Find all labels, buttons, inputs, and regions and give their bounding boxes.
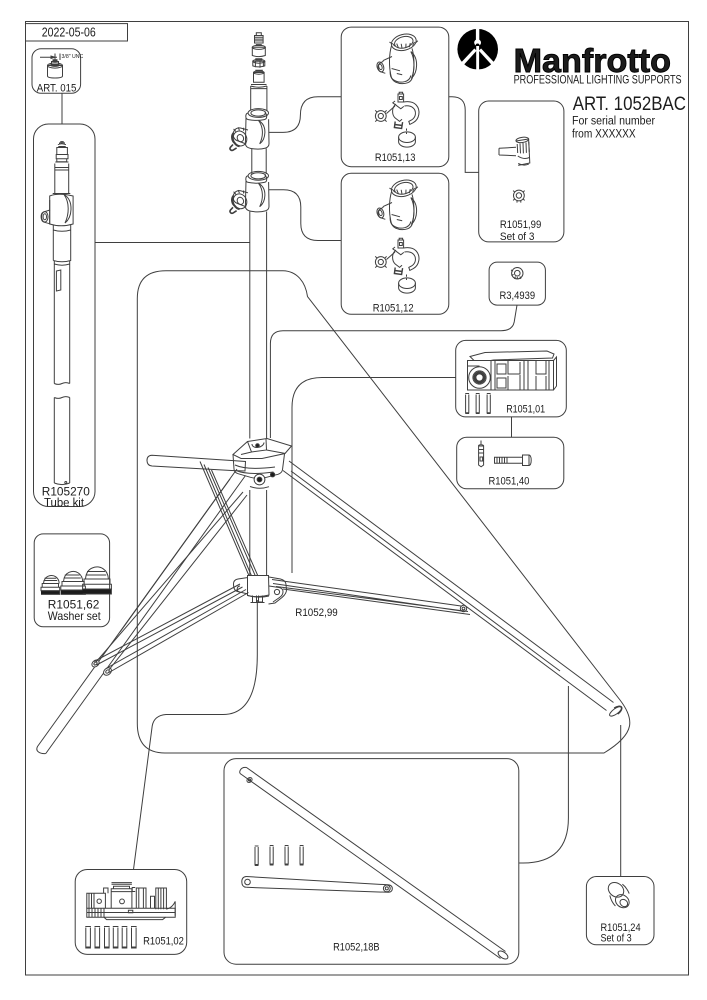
svg-text:R1051,01: R1051,01: [506, 404, 545, 416]
svg-text:2022-05-06: 2022-05-06: [42, 25, 96, 40]
svg-text:For serial number: For serial number: [572, 113, 655, 127]
svg-text:Washer set: Washer set: [48, 610, 102, 623]
svg-text:Set of 3: Set of 3: [601, 933, 632, 945]
svg-text:R1051,12: R1051,12: [373, 303, 414, 315]
svg-text:ART. 1052BAC: ART. 1052BAC: [573, 93, 686, 115]
svg-text:R1051,40: R1051,40: [489, 475, 530, 487]
svg-text:from XXXXXX: from XXXXXX: [572, 126, 636, 140]
svg-text:ART. 015: ART. 015: [37, 82, 77, 94]
svg-text:R1051,02: R1051,02: [143, 935, 184, 947]
svg-text:Set of 3: Set of 3: [500, 231, 535, 243]
svg-text:PROFESSIONAL LIGHTING SUPPORTS: PROFESSIONAL LIGHTING SUPPORTS: [514, 73, 682, 87]
svg-text:Tube kit: Tube kit: [44, 496, 85, 510]
svg-text:R1051,99: R1051,99: [500, 219, 541, 231]
svg-text:R1052,99: R1052,99: [295, 607, 337, 619]
svg-text:R3,4939: R3,4939: [500, 290, 536, 302]
svg-text:R1051,13: R1051,13: [375, 152, 416, 164]
svg-text:R1052,18B: R1052,18B: [333, 941, 380, 953]
svg-text:3/8" UNC: 3/8" UNC: [62, 54, 84, 60]
